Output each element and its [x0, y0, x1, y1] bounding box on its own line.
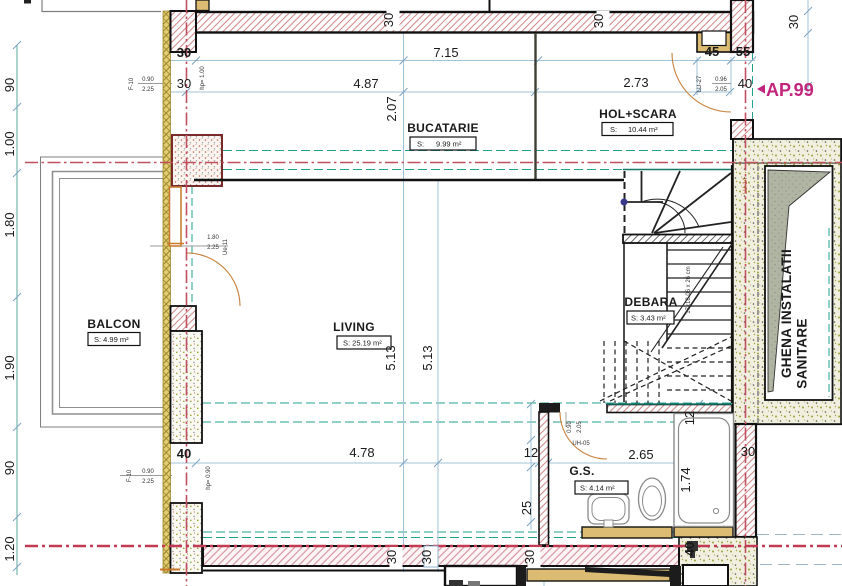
svg-text:2.73: 2.73: [623, 75, 648, 90]
svg-text:1.90: 1.90: [2, 355, 17, 380]
svg-text:0.90: 0.90: [142, 77, 154, 83]
svg-text:17x18.06 x 26 cm: 17x18.06 x 26 cm: [686, 266, 692, 313]
svg-text:1.80: 1.80: [207, 235, 219, 241]
svg-text:30: 30: [384, 550, 399, 564]
svg-text:2.05: 2.05: [715, 87, 727, 93]
svg-text:7.15: 7.15: [433, 45, 458, 60]
svg-text:25: 25: [519, 501, 534, 515]
svg-text:55: 55: [736, 44, 750, 59]
svg-text:Ue-11: Ue-11: [223, 238, 229, 255]
svg-text:4.87: 4.87: [353, 76, 378, 91]
svg-text:1.20: 1.20: [2, 536, 17, 561]
svg-text:40: 40: [177, 446, 191, 461]
svg-text:F-10: F-10: [129, 77, 135, 90]
svg-text:S: 3.43 m²: S: 3.43 m²: [631, 314, 666, 323]
svg-text:5.13: 5.13: [383, 345, 398, 370]
svg-text:BALCON: BALCON: [87, 317, 140, 331]
svg-text:90: 90: [2, 461, 17, 475]
svg-text:DEBARA: DEBARA: [624, 295, 677, 309]
svg-text:12: 12: [682, 411, 697, 425]
svg-text:4.78: 4.78: [349, 445, 374, 460]
svg-text:LIVING: LIVING: [333, 320, 375, 334]
svg-text:10.44 m²: 10.44 m²: [628, 125, 658, 134]
svg-text:30: 30: [177, 76, 191, 91]
svg-text:LU-27: LU-27: [697, 75, 703, 92]
svg-text:GHENA INSTALATII: GHENA INSTALATII: [779, 249, 794, 378]
svg-text:90: 90: [2, 78, 17, 92]
svg-text:S: 4.14 m²: S: 4.14 m²: [580, 484, 615, 493]
svg-text:1.74: 1.74: [678, 467, 693, 492]
svg-text:12: 12: [524, 445, 538, 460]
svg-text:F-10: F-10: [127, 469, 133, 482]
svg-text:BUCATARIE: BUCATARIE: [407, 121, 479, 135]
svg-text:0.90: 0.90: [567, 421, 573, 433]
svg-text:S: 25.19 m²: S: 25.19 m²: [343, 339, 382, 348]
svg-text:S: 4.99 m²: S: 4.99 m²: [94, 335, 129, 344]
svg-text:hp= 0.90: hp= 0.90: [206, 466, 212, 490]
svg-text:SANITARE: SANITARE: [795, 318, 810, 388]
svg-text:HOL+SCARA: HOL+SCARA: [599, 107, 677, 121]
svg-text:hp= 1.00: hp= 1.00: [200, 66, 206, 90]
svg-text:LU-14: LU-14: [743, 177, 749, 194]
svg-text:S:: S:: [417, 140, 424, 149]
svg-text:0.90: 0.90: [142, 469, 154, 475]
svg-text:30: 30: [381, 13, 396, 27]
svg-text:AP.99: AP.99: [766, 80, 814, 100]
svg-text:S:: S:: [610, 125, 617, 134]
svg-text:2.07: 2.07: [384, 96, 399, 121]
svg-text:30: 30: [177, 45, 191, 60]
svg-text:2.25: 2.25: [207, 245, 219, 251]
svg-text:1.80: 1.80: [2, 212, 17, 237]
svg-text:2.65: 2.65: [628, 447, 653, 462]
svg-text:30: 30: [591, 14, 606, 28]
svg-text:9.99 m²: 9.99 m²: [436, 140, 462, 149]
svg-text:G.S.: G.S.: [569, 464, 594, 478]
svg-text:5.13: 5.13: [420, 345, 435, 370]
svg-text:30: 30: [419, 550, 434, 564]
svg-text:2.05: 2.05: [577, 421, 583, 433]
svg-text:2.25: 2.25: [142, 479, 154, 485]
svg-text:30: 30: [786, 15, 801, 29]
svg-text:40: 40: [682, 542, 697, 556]
svg-text:45: 45: [705, 44, 719, 59]
svg-text:30: 30: [522, 550, 537, 564]
svg-text:40: 40: [738, 76, 752, 91]
svg-text:1.00: 1.00: [2, 131, 17, 156]
svg-text:UH-05: UH-05: [572, 441, 590, 447]
svg-text:0.96: 0.96: [715, 77, 727, 83]
svg-text:2.25: 2.25: [142, 87, 154, 93]
svg-text:30: 30: [741, 444, 755, 459]
